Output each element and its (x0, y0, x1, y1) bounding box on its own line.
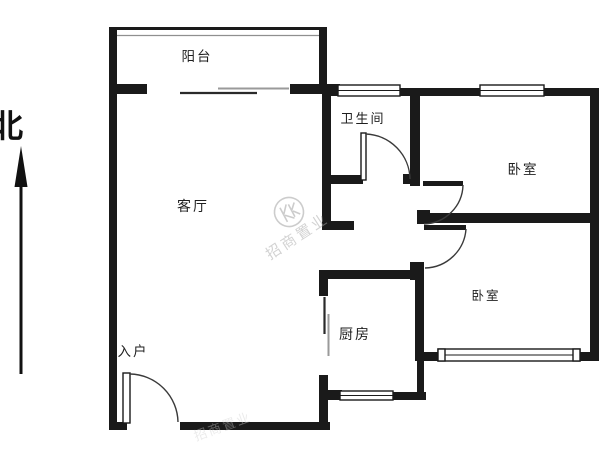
wall-segment (319, 27, 327, 89)
floor-plan: 北 招商置业 招商置业 阳台 客厅 卫生间 卧室 卧室 厨房 入户 (0, 0, 600, 450)
wall-segment (403, 174, 412, 184)
wall-segment (109, 84, 147, 94)
room-label-entrance: 入户 (118, 343, 149, 359)
entry-door (123, 373, 178, 423)
windows (338, 85, 580, 400)
north-arrowhead-icon (15, 146, 28, 187)
bathroom-window (338, 85, 400, 96)
bathroom-door (361, 133, 410, 180)
watermark-text: 招商置业 (263, 210, 333, 263)
room-label-bedroom-bottom: 卧室 (471, 288, 500, 303)
wall-segment (319, 270, 328, 296)
room-label-balcony: 阳台 (182, 49, 213, 64)
bedroom-top-window (480, 85, 544, 96)
wall-segment (322, 270, 424, 279)
wall-segment (322, 175, 363, 184)
wall-segment (410, 88, 420, 186)
room-label-bathroom: 卫生间 (340, 111, 385, 126)
wall-segment (590, 88, 599, 361)
wall-segment (417, 361, 424, 392)
north-label: 北 (0, 108, 23, 144)
room-label-kitchen: 厨房 (339, 326, 371, 342)
watermark: 招商置业 招商置业 (192, 192, 333, 443)
room-label-bedroom-top: 卧室 (508, 161, 539, 177)
wall-segment (415, 270, 424, 361)
bedroom-bottom-door (424, 225, 466, 268)
north-compass: 北 (0, 108, 28, 374)
wall-segment (417, 210, 430, 224)
wall-segment (319, 375, 328, 427)
floor-plan-drawing: 北 招商置业 招商置业 阳台 客厅 卫生间 卧室 卧室 厨房 入户 (0, 0, 600, 450)
balcony-sliding-door (180, 89, 289, 94)
room-label-living-room: 客厅 (177, 198, 209, 214)
kitchen-sliding-door (325, 297, 329, 356)
wall-segment (410, 262, 424, 280)
watermark-text-fragment: 招商置业 (192, 409, 254, 444)
kitchen-window (340, 391, 393, 400)
wall-segment (322, 88, 331, 229)
bedroom-bottom-window (438, 349, 580, 361)
